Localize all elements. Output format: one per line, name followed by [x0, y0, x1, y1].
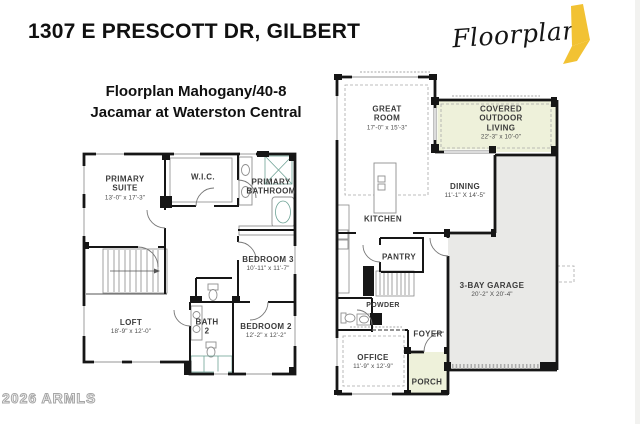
room-name: COVERED OUTDOOR LIVING	[477, 105, 525, 133]
room-name: PRIMARY BATHROOM	[241, 178, 301, 197]
room-dims: 11'-9" x 12'-9"	[353, 364, 393, 371]
room-label-covered-outdoor-living: COVERED OUTDOOR LIVING 22'-3" x 10'-0"	[477, 105, 525, 142]
room-label-bedroom-3: BEDROOM 3 10'-11" x 11'-7"	[228, 255, 308, 273]
room-label-pantry: PANTRY	[369, 252, 429, 261]
room-name: PORCH	[397, 377, 457, 386]
room-label-powder: POWDER	[353, 302, 413, 310]
room-name: DINING	[430, 182, 500, 191]
stairs-main	[363, 266, 414, 296]
stair-direction-arrow	[154, 269, 160, 274]
room-dims: 17'-0" x 15'-3"	[367, 124, 407, 131]
room-dims: 11'-1" X 14'-5"	[445, 193, 486, 200]
room-name: FOYER	[398, 329, 458, 338]
room-name: PANTRY	[369, 252, 429, 261]
room-name: KITCHEN	[348, 214, 418, 223]
room-dims: 22'-3" x 10'-0"	[481, 134, 521, 141]
room-name: BEDROOM 3	[228, 255, 308, 264]
porch-area	[408, 352, 448, 394]
room-label-wic: W.I.C.	[173, 172, 233, 181]
room-label-great-room: GREAT ROOM 17'-0" x 15'-3"	[367, 104, 407, 131]
garage-side-pad	[557, 266, 574, 282]
room-name: BATH 2	[192, 318, 222, 337]
room-label-primary-bathroom: PRIMARY BATHROOM	[241, 178, 301, 197]
room-name: PRIMARY SUITE	[99, 174, 151, 193]
room-dims: 13'-0" x 17'-3"	[105, 194, 145, 201]
toilet-icon	[345, 314, 355, 322]
sink-icon	[360, 316, 369, 323]
room-label-primary-suite: PRIMARY SUITE 13'-0" x 17'-3"	[99, 174, 151, 201]
armls-watermark: 2026 ARMLS	[2, 390, 96, 406]
room-name: 3-BAY GARAGE	[457, 281, 527, 290]
bath2-tub-icon	[191, 356, 232, 372]
sink-icon	[242, 165, 250, 176]
room-label-porch: PORCH	[397, 377, 457, 386]
wall-oven-icon	[338, 230, 348, 239]
room-label-kitchen: KITCHEN	[348, 214, 418, 223]
room-label-office: OFFICE 11'-9" x 12'-9"	[343, 353, 403, 371]
room-name: POWDER	[353, 302, 413, 310]
room-label-foyer: FOYER	[398, 329, 458, 338]
room-name: OFFICE	[343, 353, 403, 362]
cooktop-icon	[378, 176, 385, 182]
garage-entry-door	[430, 238, 448, 256]
wall-oven-icon	[338, 240, 348, 249]
room-label-dining: DINING 11'-1" X 14'-5"	[430, 182, 500, 200]
room-name: GREAT ROOM	[367, 104, 407, 123]
room-dims: 18'-9" x 12'-0"	[111, 329, 151, 336]
cooktop-icon	[378, 184, 385, 190]
room-label-loft: LOFT 18'-9" x 12'-0"	[86, 318, 176, 336]
floorplan-sheet: 1307 E PRESCOTT DR, GILBERT Floorplan Ma…	[0, 0, 640, 424]
room-dims: 20'-2" X 20'-4"	[471, 292, 512, 299]
room-label-garage: 3-BAY GARAGE 20'-2" X 20'-4"	[457, 281, 527, 299]
plan-drawing	[0, 0, 640, 424]
room-label-bath-2: BATH 2	[192, 318, 222, 337]
room-dims: 12'-2" x 12'-2"	[246, 333, 286, 340]
toilet-icon	[207, 347, 215, 357]
room-name: LOFT	[86, 318, 176, 327]
room-dims: 10'-11" x 11'-7"	[247, 266, 290, 273]
bath2-tub-lines	[204, 356, 218, 372]
logo-chevron-icon	[563, 4, 590, 64]
room-label-bedroom-2: BEDROOM 2 12'-2" x 12'-2"	[226, 322, 306, 340]
room-name: W.I.C.	[173, 172, 233, 181]
toilet-icon	[209, 290, 217, 301]
room-name: BEDROOM 2	[226, 322, 306, 331]
